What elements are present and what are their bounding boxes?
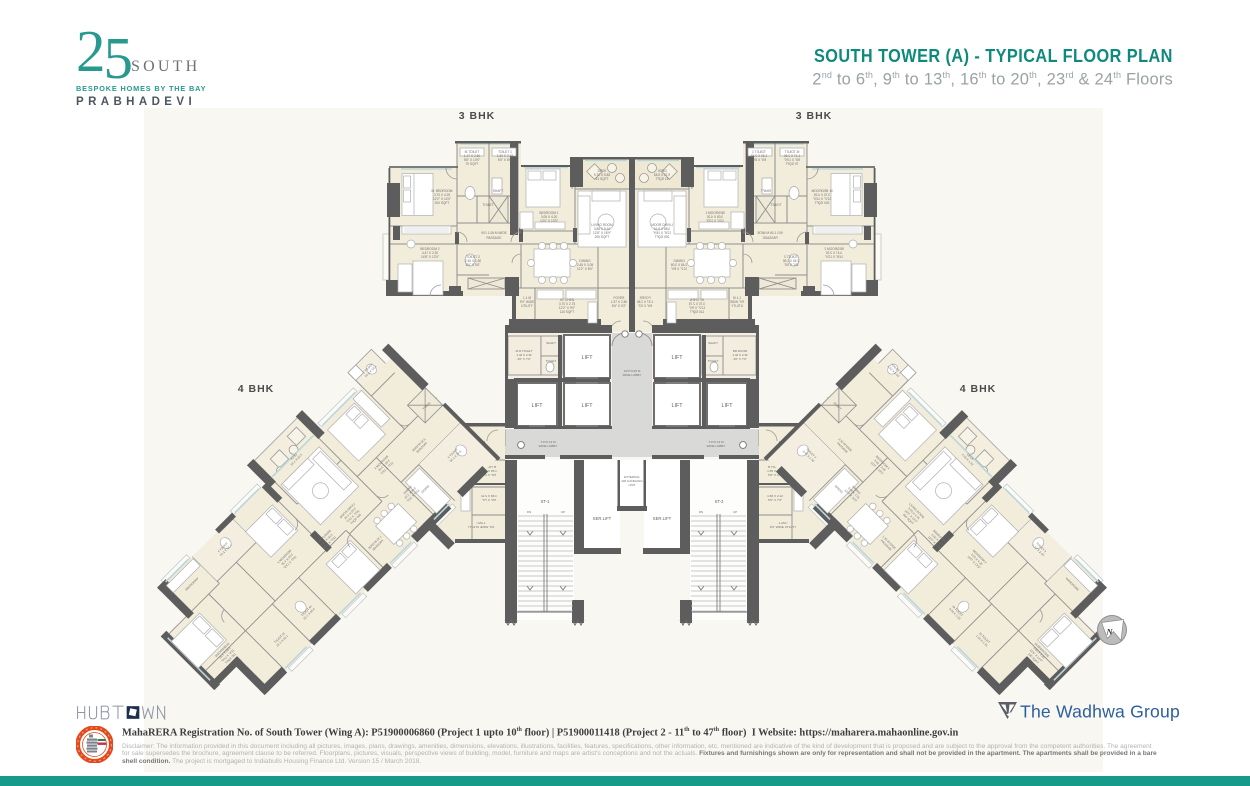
svg-text:WIDE LOBBY: WIDE LOBBY bbox=[623, 373, 642, 377]
svg-text:SHAFT: SHAFT bbox=[546, 341, 556, 345]
svg-text:4 BHK: 4 BHK bbox=[960, 383, 997, 395]
svg-text:SHAFT: SHAFT bbox=[708, 341, 718, 345]
svg-text:TOILET: TOILET bbox=[546, 359, 557, 363]
svg-text:The Wadhwa Group: The Wadhwa Group bbox=[1020, 702, 1180, 722]
svg-text:4'6" X 7'6": 4'6" X 7'6" bbox=[517, 357, 531, 361]
svg-text:3 BHK: 3 BHK bbox=[459, 110, 496, 122]
svg-text:4 BHK: 4 BHK bbox=[238, 383, 275, 395]
svg-text:LIFT: LIFT bbox=[581, 403, 593, 409]
svg-text:3 BHK: 3 BHK bbox=[796, 110, 833, 122]
svg-text:LIFT: LIFT bbox=[581, 355, 593, 361]
svg-text:N: N bbox=[1105, 627, 1113, 637]
svg-text:TOILET: TOILET bbox=[708, 359, 719, 363]
svg-text:DN: DN bbox=[699, 510, 703, 514]
svg-text:WIDE LOBBY: WIDE LOBBY bbox=[539, 444, 558, 448]
svg-text:WIDE LOBBY: WIDE LOBBY bbox=[707, 444, 726, 448]
svg-text:SER.LIFT: SER.LIFT bbox=[653, 516, 672, 521]
svg-text:LIFT: LIFT bbox=[671, 355, 683, 361]
svg-text:ST-2: ST-2 bbox=[715, 499, 725, 504]
svg-text:LIFT: LIFT bbox=[671, 403, 683, 409]
svg-text:ST-1: ST-1 bbox=[541, 499, 551, 504]
svg-text:UP: UP bbox=[561, 510, 565, 514]
svg-text:UNIT: UNIT bbox=[629, 483, 636, 487]
svg-text:SER.LIFT: SER.LIFT bbox=[593, 516, 612, 521]
svg-text:LIFT: LIFT bbox=[721, 403, 733, 409]
svg-text:4'6" X 7'6": 4'6" X 7'6" bbox=[733, 357, 747, 361]
svg-text:LIFT: LIFT bbox=[531, 403, 543, 409]
svg-text:DN: DN bbox=[527, 510, 531, 514]
svg-text:UP: UP bbox=[733, 510, 737, 514]
